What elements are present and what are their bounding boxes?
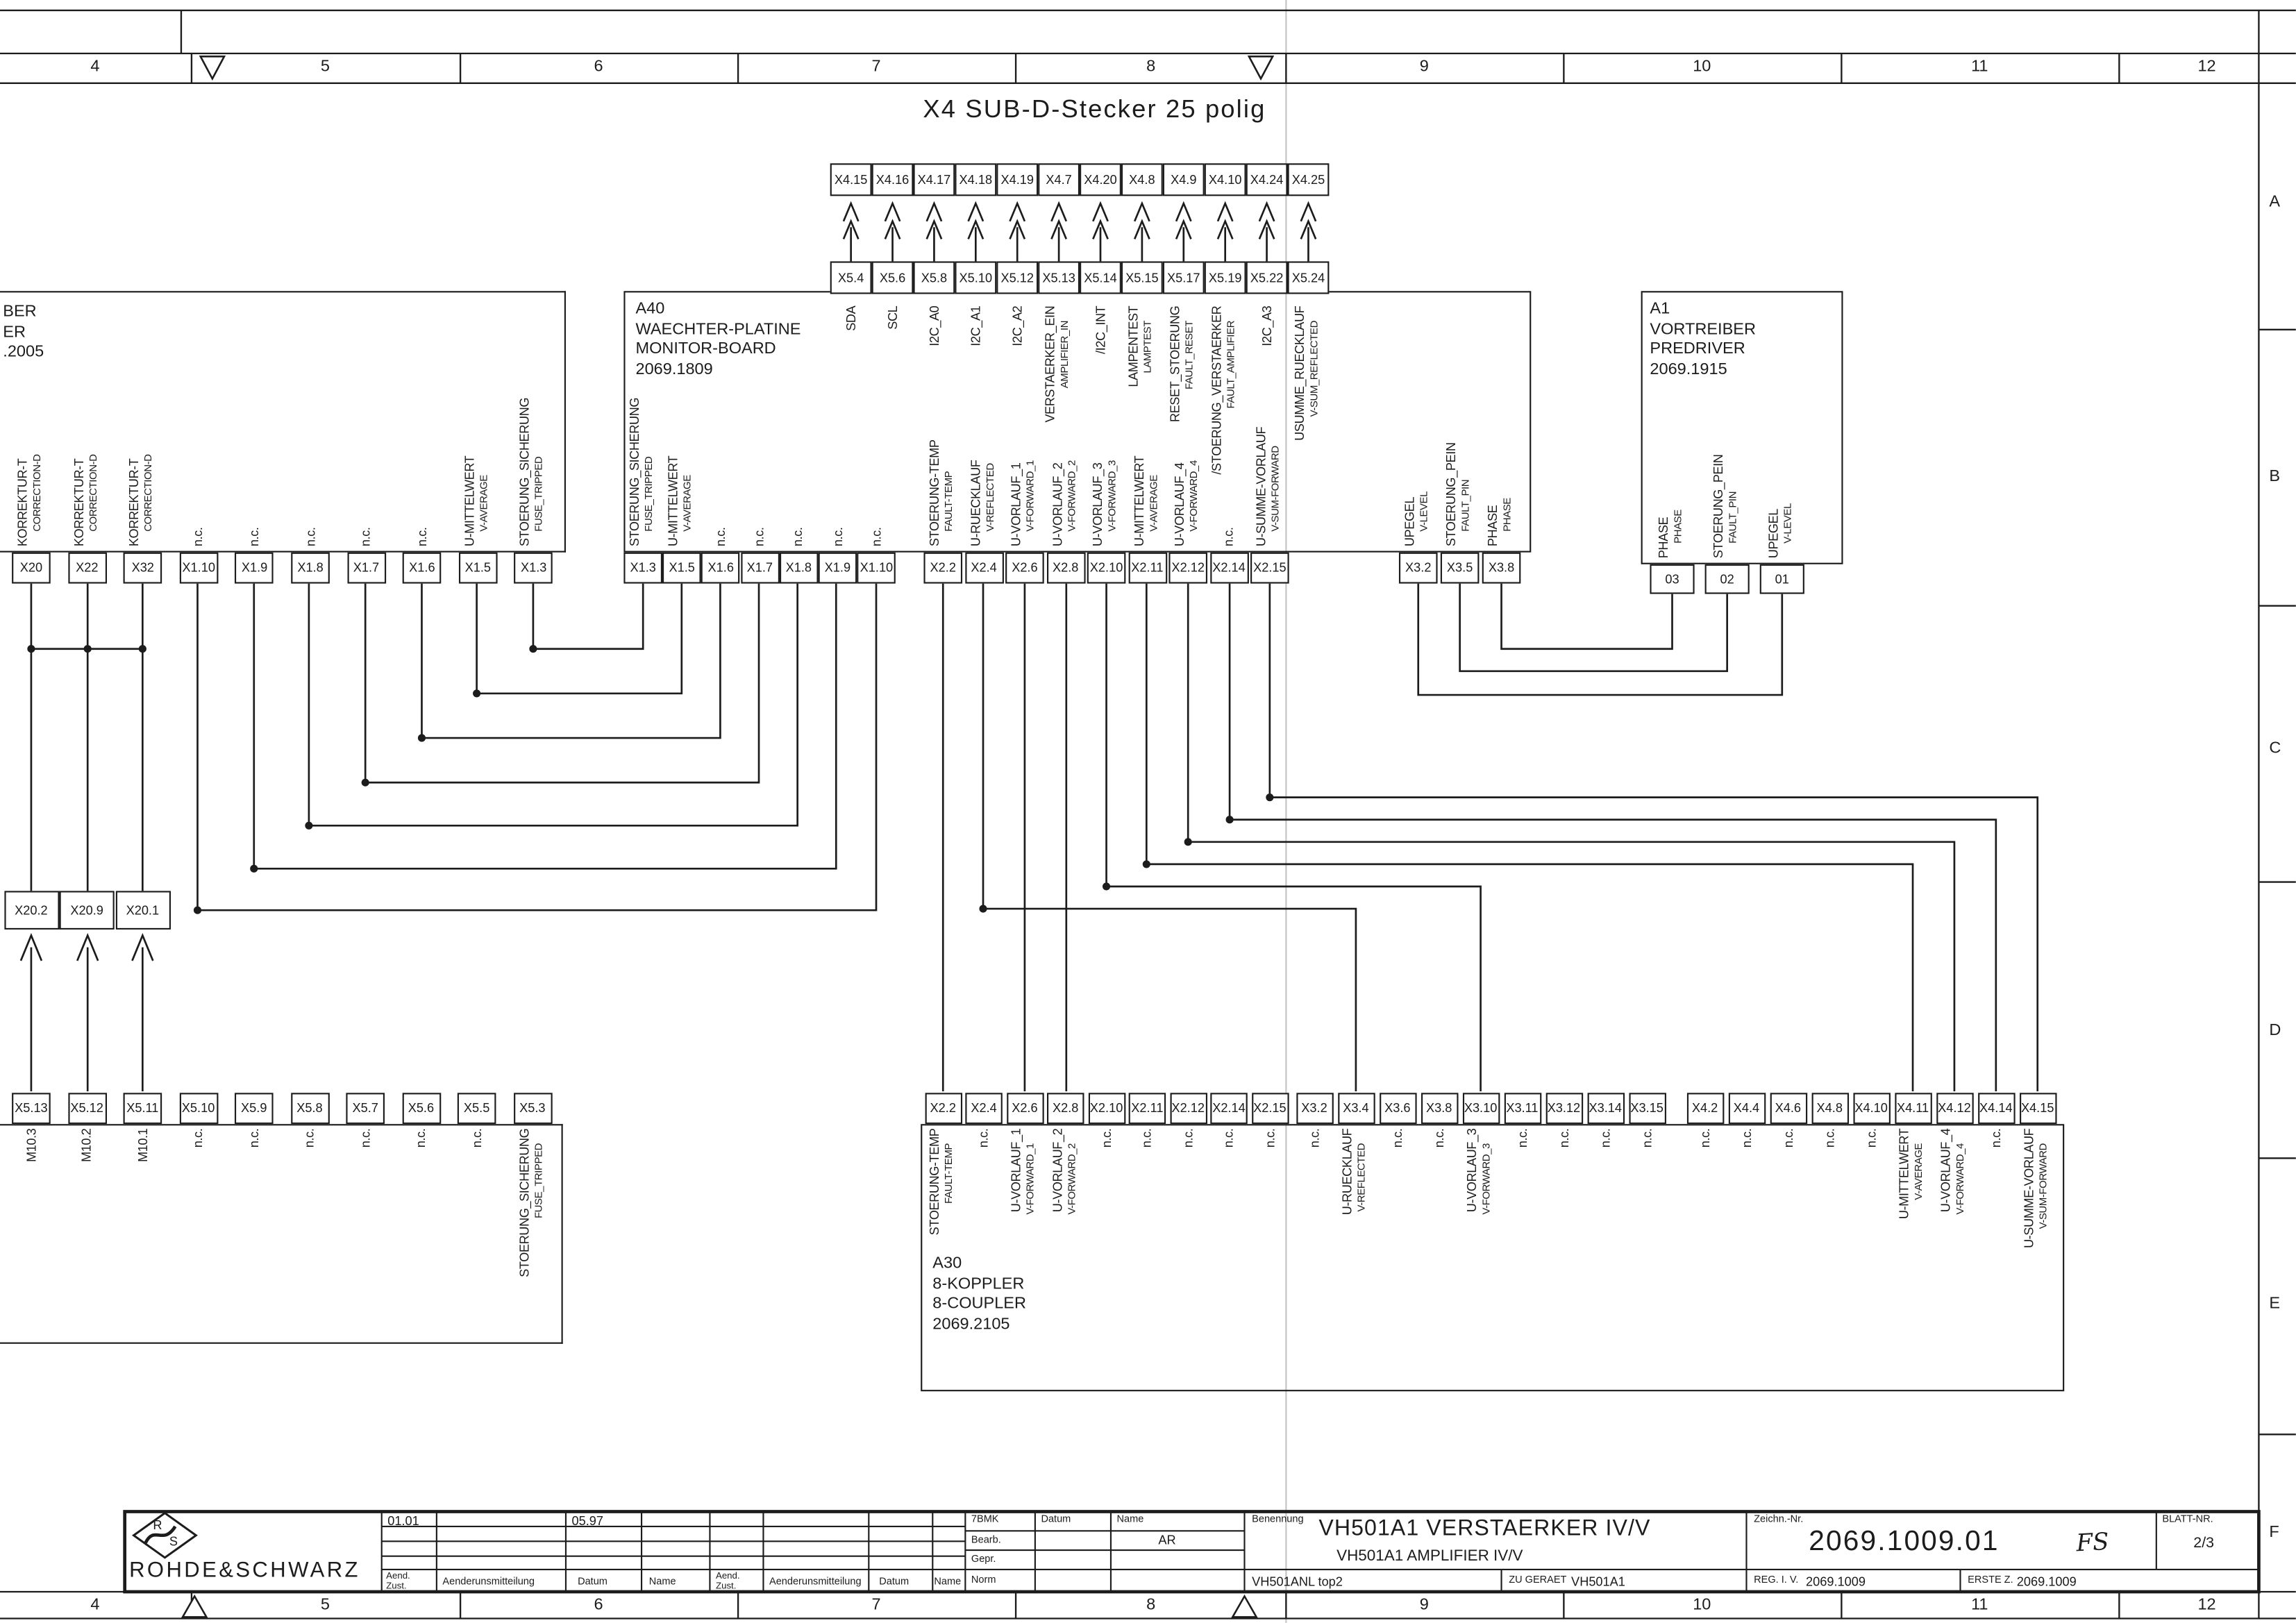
approval-row-bearb: Bearb.	[971, 1536, 1001, 1546]
pin-X2.4: X2.4	[964, 553, 1003, 584]
pin-X3.12: X3.12	[1545, 1093, 1582, 1124]
signal-name-de: n.c.	[1516, 1129, 1530, 1381]
pin-X5.19: X5.19	[1205, 261, 1246, 294]
pin-signal-label: n.c.	[1222, 323, 1236, 546]
signal-name-de: U-VORLAUF_2	[1050, 323, 1064, 546]
signal-name-de: n.c.	[870, 323, 884, 546]
benennung-label: Benennung	[1252, 1515, 1303, 1525]
schematic-sheet: X4 SUB-D-Stecker 25 polig BER ER .2005 A…	[0, 0, 2296, 1623]
signal-name-en: V-REFLECTED	[1355, 1129, 1369, 1381]
signal-name-en: V-FORWARD_4	[1187, 323, 1201, 546]
pin-X20.1: X20.1	[115, 891, 170, 930]
signal-name-en: V-SUM-FORWARD	[1269, 323, 1283, 546]
pin-02: 02	[1705, 564, 1750, 594]
signal-name-de: U-VORLAUF_4	[1173, 323, 1187, 546]
pin-signal-label: n.c.	[831, 323, 845, 546]
pin-signal-label: n.c.	[192, 1129, 206, 1374]
signal-name-de: n.c.	[415, 323, 429, 546]
pin-signal-label: STOERUNG_PEINFAULT_PIN	[1445, 323, 1473, 546]
pin-signal-label: n.c.	[1823, 1129, 1837, 1381]
signal-name-de: U-MITTELWERT	[463, 323, 477, 546]
pin-X20.9: X20.9	[60, 891, 115, 930]
pin-X5.24: X5.24	[1288, 261, 1330, 294]
signal-name-en: V-FORWARD_2	[1065, 323, 1079, 546]
pin-signal-label: n.c.	[753, 323, 767, 546]
approval-bearb-name: AR	[1158, 1532, 1175, 1547]
pin-signal-label: U-VORLAUF_1V-FORWARD_1	[1010, 323, 1039, 546]
signal-name-de: n.c.	[1989, 1129, 2003, 1381]
pin-X2.15: X2.15	[1251, 1093, 1288, 1124]
pin-signal-label: STOERUNG_PEINFAULT_PIN	[1712, 351, 1741, 558]
blatt-nr-label: BLATT-NR.	[2162, 1515, 2213, 1525]
a1-name-de: VORTREIBER	[1650, 320, 1756, 340]
signal-name-de: n.c.	[1307, 1129, 1321, 1381]
pin-X5.11: X5.11	[124, 1093, 162, 1124]
pin-signal-label: n.c.	[870, 323, 884, 546]
pin-signal-label: U-RUECKLAUFV-REFLECTED	[969, 323, 998, 546]
pin-X4.8: X4.8	[1121, 163, 1163, 196]
pin-X5.6: X5.6	[402, 1093, 441, 1124]
pin-X1.3: X1.3	[623, 553, 662, 584]
signal-name-de: n.c.	[1865, 1129, 1879, 1381]
grid-column-label-top: 4	[90, 58, 99, 76]
rohde-schwarz-logo-icon	[131, 1512, 199, 1563]
signal-name-de: n.c.	[1222, 323, 1236, 546]
pin-X5.6: X5.6	[872, 261, 914, 294]
signal-name-de: U-VORLAUF_3	[1466, 1129, 1480, 1381]
pin-signal-label: n.c.	[1782, 1129, 1795, 1381]
pin-X4.20: X4.20	[1080, 163, 1121, 196]
pin-signal-label: KORREKTUR-TCORRECTION-D	[128, 323, 156, 546]
signal-name-de: KORREKTUR-T	[72, 323, 86, 546]
grid-column-label-bottom: 12	[2197, 1596, 2215, 1614]
pin-signal-label: n.c.	[1391, 1129, 1405, 1381]
zu-geraet-label: ZU GERAET	[1509, 1575, 1566, 1586]
signal-name-de: KORREKTUR-T	[17, 323, 31, 546]
pin-X2.4: X2.4	[965, 1093, 1002, 1124]
signal-name-en: FAULT-TEMP	[942, 323, 956, 546]
pin-X4.14: X4.14	[1977, 1093, 2014, 1124]
pin-X1.7: X1.7	[740, 553, 779, 584]
pin-X4.7: X4.7	[1038, 163, 1080, 196]
pin-X3.11: X3.11	[1504, 1093, 1541, 1124]
signal-name-de: PHASE	[1486, 323, 1500, 546]
pin-signal-label: n.c.	[1222, 1129, 1236, 1381]
pin-X1.10: X1.10	[179, 553, 218, 584]
pin-signal-label: n.c.	[470, 1129, 484, 1374]
signal-name-de: n.c.	[1782, 1129, 1795, 1381]
approval-row-gepr: Gepr.	[971, 1555, 996, 1565]
grid-row-label: F	[2269, 1524, 2279, 1542]
signal-name-de: M10.1	[136, 1129, 150, 1374]
zeichn-nr-label: Zeichn.-Nr.	[1754, 1515, 1803, 1525]
rev-header-name-1: Name	[649, 1577, 676, 1588]
signal-name-en: V-FORWARD_4	[1954, 1129, 1968, 1381]
rev-header-mitteilung-2: Aenderunsmitteilung	[769, 1577, 862, 1588]
signal-name-de: U-VORLAUF_3	[1091, 323, 1105, 546]
signal-name-de: M10.3	[24, 1129, 38, 1374]
signal-name-de: M10.2	[81, 1129, 94, 1374]
signal-name-de: n.c.	[414, 1129, 428, 1374]
pin-signal-label: n.c.	[1263, 1129, 1277, 1381]
pin-X5.5: X5.5	[458, 1093, 496, 1124]
rev-header-datum-1: Datum	[578, 1577, 607, 1588]
signal-name-de: STOERUNG_SICHERUNG	[517, 1129, 531, 1374]
logo-letter-s: S	[169, 1534, 178, 1549]
pin-X5.10: X5.10	[955, 261, 996, 294]
pin-X3.5: X3.5	[1441, 553, 1480, 584]
pin-X3.15: X3.15	[1628, 1093, 1665, 1124]
pin-X20.2: X20.2	[3, 891, 58, 930]
pin-signal-label: U-MITTELWERTV-AVERAGE	[667, 323, 696, 546]
pin-signal-label: n.c.	[1307, 1129, 1321, 1381]
signal-name-en: V-SUM_REFLECTED	[1307, 306, 1321, 499]
pin-signal-label: PHASEPHASE	[1657, 351, 1686, 558]
pin-X5.12: X5.12	[996, 261, 1038, 294]
signal-name-en: FAULT-TEMP	[942, 1129, 956, 1381]
pin-signal-label: n.c.	[1599, 1129, 1613, 1381]
pin-X1.5: X1.5	[459, 553, 498, 584]
pin-X4.8: X4.8	[1811, 1093, 1848, 1124]
pin-signal-label: STOERUNG_SICHERUNGFUSE_TRIPPED	[517, 1129, 546, 1374]
pin-X4.16: X4.16	[872, 163, 914, 196]
company-name: ROHDE&SCHWARZ	[129, 1559, 360, 1583]
pin-signal-label: n.c.	[1182, 1129, 1196, 1381]
signal-name-de: n.c.	[360, 323, 374, 546]
signal-name-de: n.c.	[303, 1129, 317, 1374]
pin-X1.10: X1.10	[857, 553, 896, 584]
pin-X3.14: X3.14	[1587, 1093, 1624, 1124]
grid-column-label-bottom: 7	[871, 1596, 880, 1614]
signal-name-de: n.c.	[1823, 1129, 1837, 1381]
blatt-nr-value: 2/3	[2193, 1536, 2214, 1552]
pin-X4.17: X4.17	[913, 163, 955, 196]
pin-X3.4: X3.4	[1337, 1093, 1374, 1124]
pin-X2.11: X2.11	[1128, 553, 1167, 584]
pin-signal-label: M10.2	[81, 1129, 94, 1374]
signal-name-en: CORRECTION-D	[31, 323, 44, 546]
pin-X4.12: X4.12	[1936, 1093, 1972, 1124]
pin-X4.6: X4.6	[1770, 1093, 1807, 1124]
grid-column-label-bottom: 10	[1693, 1596, 1711, 1614]
aend-line2: Zust.	[386, 1581, 406, 1591]
signal-name-de: n.c.	[1100, 1129, 1114, 1381]
signal-name-en: V-REFLECTED	[983, 323, 997, 546]
signal-name-de: n.c.	[303, 323, 317, 546]
pin-X1.6: X1.6	[403, 553, 442, 584]
drawing-subtitle: VH501A1 AMPLIFIER IV/V	[1336, 1547, 1523, 1565]
erste-value: 2069.1009	[2017, 1574, 2077, 1588]
signal-name-de: STOERUNG_SICHERUNG	[628, 323, 642, 546]
pin-signal-label: n.c.	[1432, 1129, 1446, 1381]
pin-X4.11: X4.11	[1894, 1093, 1931, 1124]
a40-ref: A40	[635, 300, 801, 320]
pin-X5.12: X5.12	[67, 1093, 106, 1124]
signal-name-en: V-AVERAGE	[681, 323, 695, 546]
pin-signal-label: U-SUMME-VORLAUFV-SUM-FORWARD	[1255, 323, 1283, 546]
rev-header-datum-2: Datum	[879, 1577, 909, 1588]
signal-name-de: n.c.	[192, 1129, 206, 1374]
pin-X5.3: X5.3	[513, 1093, 552, 1124]
signal-name-de: n.c.	[1432, 1129, 1446, 1381]
signal-name-de: n.c.	[1740, 1129, 1754, 1381]
pin-X2.12: X2.12	[1169, 1093, 1206, 1124]
pin-signal-label: n.c.	[1865, 1129, 1879, 1381]
rev-header-aend-2: Aend. Zust.	[716, 1572, 740, 1592]
pin-signal-label: KORREKTUR-TCORRECTION-D	[17, 323, 45, 546]
pin-X4.15: X4.15	[2019, 1093, 2056, 1124]
pin-signal-label: n.c.	[1516, 1129, 1530, 1381]
pin-X1.9: X1.9	[819, 553, 857, 584]
signal-name-de: PHASE	[1657, 351, 1671, 558]
reg-value: 2069.1009	[1806, 1574, 1866, 1588]
pin-signal-label: M10.1	[136, 1129, 150, 1374]
doc-id: VH501ANL top2	[1252, 1574, 1343, 1588]
signal-name-de: n.c.	[359, 1129, 373, 1374]
signal-name-de: n.c.	[1641, 1129, 1654, 1381]
pin-signal-label: U-MITTELWERTV-AVERAGE	[1132, 323, 1161, 546]
signal-name-de: STOERUNG-TEMP	[928, 1129, 942, 1381]
signal-name-de: n.c.	[753, 323, 767, 546]
pin-X3.10: X3.10	[1462, 1093, 1499, 1124]
grid-column-label-top: 11	[1971, 58, 1988, 76]
grid-column-label-top: 5	[321, 58, 330, 76]
grid-column-label-top: 7	[871, 58, 880, 76]
signal-name-de: U-MITTELWERT	[1898, 1129, 1912, 1381]
grid-row-label: D	[2269, 1022, 2281, 1040]
pin-signal-label: n.c.	[415, 323, 429, 546]
sheet-title: X4 SUB-D-Stecker 25 polig	[923, 95, 1266, 125]
pin-X1.6: X1.6	[701, 553, 740, 584]
pin-X2.14: X2.14	[1209, 553, 1248, 584]
pin-X3.2: X3.2	[1399, 553, 1438, 584]
signal-name-de: U-VORLAUF_1	[1010, 1129, 1024, 1381]
grid-column-label-bottom: 5	[321, 1596, 330, 1614]
pin-X4.2: X4.2	[1686, 1093, 1723, 1124]
pin-signal-label: n.c.	[359, 1129, 373, 1374]
signal-name-en: V-FORWARD_2	[1065, 1129, 1079, 1381]
rev-header-name-2: Name	[934, 1577, 961, 1588]
signal-name-en: FUSE_TRIPPED	[642, 323, 656, 546]
signal-name-de: n.c.	[1557, 1129, 1571, 1381]
signal-name-de: n.c.	[470, 1129, 484, 1374]
logo-letter-r: R	[153, 1517, 162, 1532]
drawing-number-annotation: FS	[2075, 1527, 2109, 1557]
signal-name-en: V-FORWARD_1	[1024, 1129, 1038, 1381]
signal-name-de: n.c.	[977, 1129, 991, 1381]
pin-X2.14: X2.14	[1210, 1093, 1247, 1124]
pin-signal-label: n.c.	[714, 323, 728, 546]
aend-line1: Aend.	[386, 1571, 410, 1581]
zu-geraet-value: VH501A1	[1571, 1574, 1625, 1588]
signal-name-de: U-VORLAUF_4	[1940, 1129, 1954, 1381]
drawing-number: 2069.1009.01	[1809, 1527, 1999, 1559]
signal-name-de: n.c.	[792, 323, 806, 546]
signal-name-de: n.c.	[1141, 1129, 1155, 1381]
pin-signal-label: n.c.	[247, 1129, 261, 1374]
signal-name-de: STOERUNG_SICHERUNG	[519, 323, 533, 546]
signal-name-de: STOERUNG_PEIN	[1712, 351, 1726, 558]
pin-X5.22: X5.22	[1246, 261, 1288, 294]
grid-column-label-top: 6	[594, 58, 603, 76]
grid-row-label: E	[2269, 1295, 2280, 1313]
pin-signal-label: n.c.	[1141, 1129, 1155, 1381]
pin-signal-label: U-VORLAUF_4V-FORWARD_4	[1173, 323, 1202, 546]
signal-name-de: n.c.	[1599, 1129, 1613, 1381]
pin-signal-label: U-VORLAUF_3V-FORWARD_3	[1466, 1129, 1494, 1381]
pin-signal-label: U-VORLAUF_4V-FORWARD_4	[1940, 1129, 1968, 1381]
pin-X2.8: X2.8	[1046, 553, 1085, 584]
pin-X3.2: X3.2	[1296, 1093, 1332, 1124]
pin-signal-label: STOERUNG-TEMPFAULT-TEMP	[928, 1129, 957, 1381]
grid-column-label-bottom: 4	[90, 1596, 99, 1614]
pin-signal-label: U-MITTELWERTV-AVERAGE	[463, 323, 492, 546]
pin-signal-label: n.c.	[192, 323, 206, 546]
pin-X4.4: X4.4	[1728, 1093, 1765, 1124]
pin-signal-label: n.c.	[248, 323, 262, 546]
pin-signal-label: n.c.	[1557, 1129, 1571, 1381]
pin-X3.8: X3.8	[1421, 1093, 1457, 1124]
pin-X4.19: X4.19	[996, 163, 1038, 196]
pin-signal-label: U-VORLAUF_1V-FORWARD_1	[1010, 1129, 1039, 1381]
signal-name-en: FUSE_TRIPPED	[533, 323, 547, 546]
grid-column-label-top: 8	[1146, 58, 1155, 76]
pin-X4.9: X4.9	[1163, 163, 1205, 196]
pin-X3.6: X3.6	[1379, 1093, 1416, 1124]
rev-zust-value: 01.01	[387, 1513, 419, 1528]
pin-X32: X32	[124, 553, 162, 584]
signal-name-de: U-SUMME-VORLAUF	[2022, 1129, 2036, 1381]
reg-label: REG. I. V.	[1754, 1575, 1798, 1586]
signal-name-en: V-FORWARD_3	[1480, 1129, 1494, 1381]
pin-signal-label: n.c.	[792, 323, 806, 546]
pin-X4.25: X4.25	[1288, 163, 1330, 196]
a1-ref: A1	[1650, 300, 1756, 320]
pin-X1.8: X1.8	[780, 553, 819, 584]
grid-column-label-bottom: 8	[1146, 1596, 1155, 1614]
pin-X5.15: X5.15	[1121, 261, 1163, 294]
pin-signal-label: n.c.	[977, 1129, 991, 1381]
signal-name-en: CORRECTION-D	[86, 323, 100, 546]
rev-header-aend-1: Aend. Zust.	[386, 1572, 410, 1592]
drawing-title: VH501A1 VERSTAERKER IV/V	[1318, 1516, 1650, 1541]
pin-X5.4: X5.4	[830, 261, 872, 294]
pin-X4.15: X4.15	[830, 163, 872, 196]
pin-signal-label: U-MITTELWERTV-AVERAGE	[1898, 1129, 1927, 1381]
pin-signal-label: U-RUECKLAUFV-REFLECTED	[1341, 1129, 1370, 1381]
pin-03: 03	[1650, 564, 1694, 594]
grid-row-label: B	[2269, 468, 2280, 486]
signal-name-de: U-VORLAUF_2	[1050, 1129, 1064, 1381]
signal-name-de: n.c.	[1263, 1129, 1277, 1381]
signal-name-en: V-AVERAGE	[1146, 323, 1160, 546]
signal-name-de: SDA	[844, 306, 858, 499]
pin-signal-label: n.c.	[1100, 1129, 1114, 1381]
pin-X1.9: X1.9	[235, 553, 274, 584]
erste-label: ERSTE Z.	[1968, 1575, 2013, 1586]
pin-signal-label: USUMME_RUECKLAUFV-SUM_REFLECTED	[1293, 306, 1322, 499]
pin-X5.17: X5.17	[1163, 261, 1205, 294]
aend-line1: Aend.	[716, 1571, 740, 1581]
signal-name-de: n.c.	[192, 323, 206, 546]
pin-signal-label: M10.3	[24, 1129, 38, 1374]
approval-row-norm: Norm	[971, 1575, 996, 1586]
pin-X5.10: X5.10	[179, 1093, 218, 1124]
rev-datum-value: 05.97	[572, 1513, 604, 1528]
signal-name-en: FAULT_PIN	[1459, 323, 1473, 546]
pin-signal-label: n.c.	[1698, 1129, 1712, 1381]
signal-name-en: PHASE	[1671, 351, 1685, 558]
pin-X2.15: X2.15	[1250, 553, 1289, 584]
signal-name-de: UPEGEL	[1403, 323, 1417, 546]
pin-X5.13: X5.13	[1038, 261, 1080, 294]
signal-name-de: U-RUECKLAUF	[1341, 1129, 1355, 1381]
pin-X4.10: X4.10	[1852, 1093, 1889, 1124]
pin-X2.10: X2.10	[1087, 553, 1126, 584]
aend-line2: Zust.	[716, 1581, 736, 1591]
signal-name-de: UPEGEL	[1767, 351, 1781, 558]
pin-X1.7: X1.7	[347, 553, 386, 584]
grid-row-label: C	[2269, 739, 2281, 757]
pin-signal-label: SDA	[844, 306, 858, 499]
approval-name-header: Name	[1117, 1515, 1144, 1525]
signal-name-en: CORRECTION-D	[142, 323, 156, 546]
pin-X22: X22	[68, 553, 107, 584]
pin-signal-label: STOERUNG-TEMPFAULT-TEMP	[928, 323, 957, 546]
pin-X5.14: X5.14	[1080, 261, 1121, 294]
grid-column-label-bottom: 9	[1420, 1596, 1429, 1614]
pin-signal-label: UPEGELV-LEVEL	[1403, 323, 1432, 546]
pin-X5.13: X5.13	[12, 1093, 51, 1124]
pin-X2.12: X2.12	[1168, 553, 1207, 584]
pin-X2.8: X2.8	[1047, 1093, 1084, 1124]
pin-X20: X20	[12, 553, 51, 584]
signal-name-de: U-VORLAUF_1	[1010, 323, 1024, 546]
grid-column-label-bottom: 6	[594, 1596, 603, 1614]
signal-name-de: n.c.	[714, 323, 728, 546]
signal-name-de: U-MITTELWERT	[667, 323, 681, 546]
pin-X2.6: X2.6	[1006, 1093, 1043, 1124]
left-block-line1: BER	[3, 303, 44, 323]
pin-X2.2: X2.2	[923, 553, 962, 584]
pin-X5.7: X5.7	[346, 1093, 385, 1124]
signal-name-de: n.c.	[1182, 1129, 1196, 1381]
grid-column-label-top: 12	[2197, 58, 2215, 76]
pin-signal-label: n.c.	[360, 323, 374, 546]
pin-signal-label: U-VORLAUF_3V-FORWARD_3	[1091, 323, 1120, 546]
signal-name-de: n.c.	[1391, 1129, 1405, 1381]
signal-name-en: PHASE	[1500, 323, 1514, 546]
pin-X5.8: X5.8	[290, 1093, 329, 1124]
signal-name-de: USUMME_RUECKLAUF	[1293, 306, 1307, 499]
pin-signal-label: n.c.	[1740, 1129, 1754, 1381]
pin-signal-label: n.c.	[303, 323, 317, 546]
pin-signal-label: n.c.	[414, 1129, 428, 1374]
signal-name-de: U-MITTELWERT	[1132, 323, 1146, 546]
pin-signal-label: PHASEPHASE	[1486, 323, 1515, 546]
pin-signal-label: U-VORLAUF_2V-FORWARD_2	[1050, 323, 1079, 546]
pin-signal-label: UPEGELV-LEVEL	[1767, 351, 1795, 558]
signal-name-de: U-SUMME-VORLAUF	[1255, 323, 1268, 546]
signal-name-de: n.c.	[247, 1129, 261, 1374]
grid-column-label-bottom: 11	[1971, 1596, 1988, 1614]
pin-signal-label: KORREKTUR-TCORRECTION-D	[72, 323, 101, 546]
signal-name-en: V-AVERAGE	[1912, 1129, 1926, 1381]
signal-name-de: n.c.	[831, 323, 845, 546]
pin-X3.8: X3.8	[1482, 553, 1521, 584]
signal-name-de: STOERUNG_PEIN	[1445, 323, 1459, 546]
signal-name-en: V-AVERAGE	[477, 323, 491, 546]
